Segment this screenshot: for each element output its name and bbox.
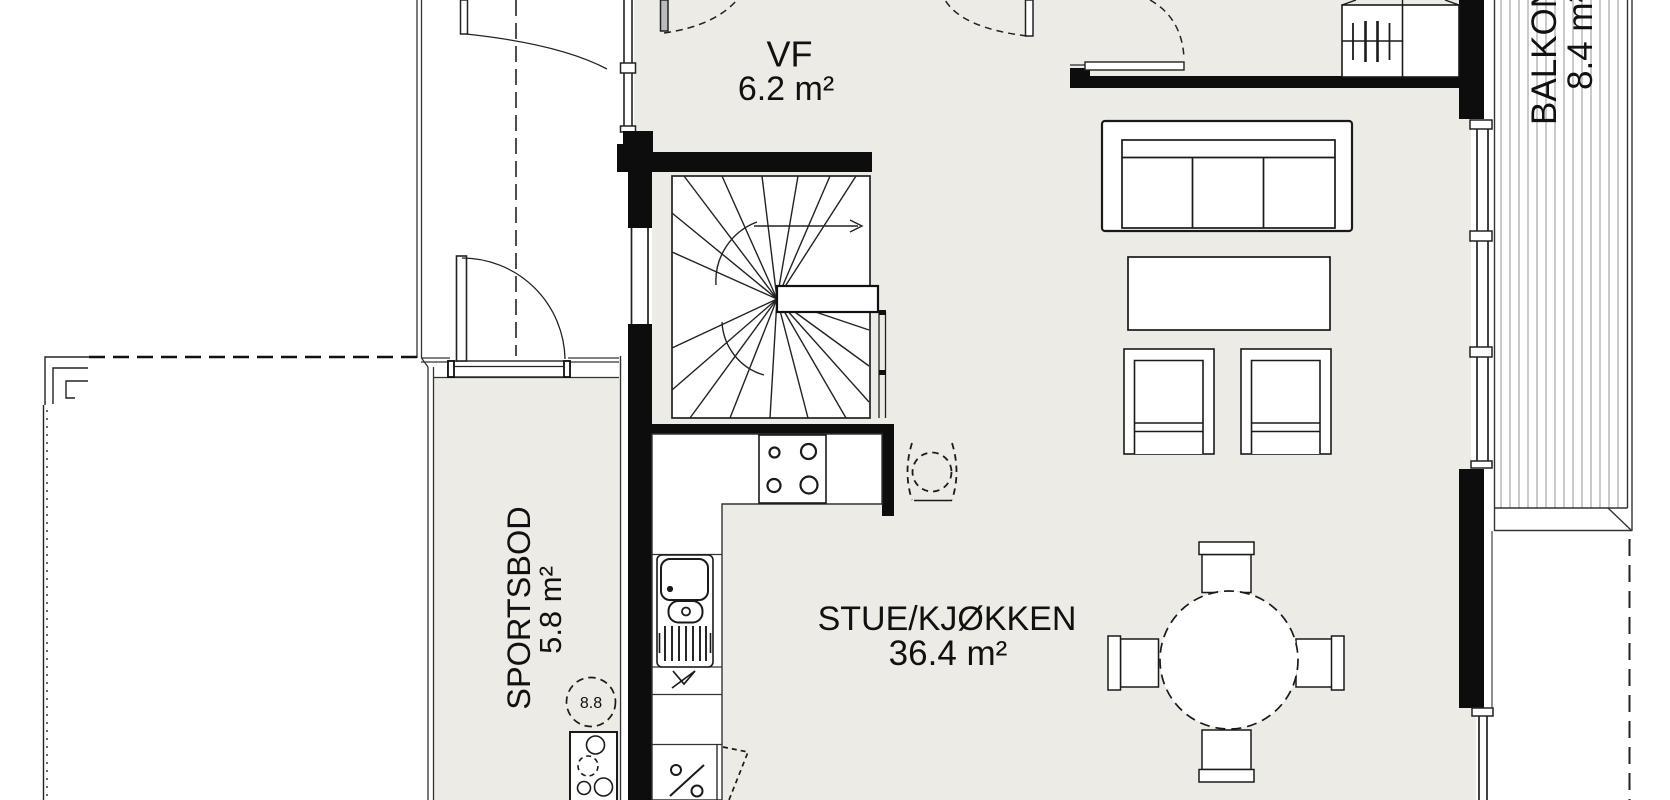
svg-text:6.2 m²: 6.2 m² bbox=[738, 70, 834, 108]
svg-text:BALKONG: BALKONG bbox=[1525, 0, 1564, 125]
svg-text:5.8 m²: 5.8 m² bbox=[533, 566, 568, 654]
svg-text:8.4 m²: 8.4 m² bbox=[1561, 0, 1600, 90]
svg-text:VF: VF bbox=[766, 34, 812, 75]
svg-text:36.4 m²: 36.4 m² bbox=[889, 634, 1008, 673]
svg-text:SPORTSBOD: SPORTSBOD bbox=[501, 506, 537, 709]
svg-text:8.8: 8.8 bbox=[580, 695, 602, 712]
svg-text:STUE/KJØKKEN: STUE/KJØKKEN bbox=[818, 600, 1077, 638]
